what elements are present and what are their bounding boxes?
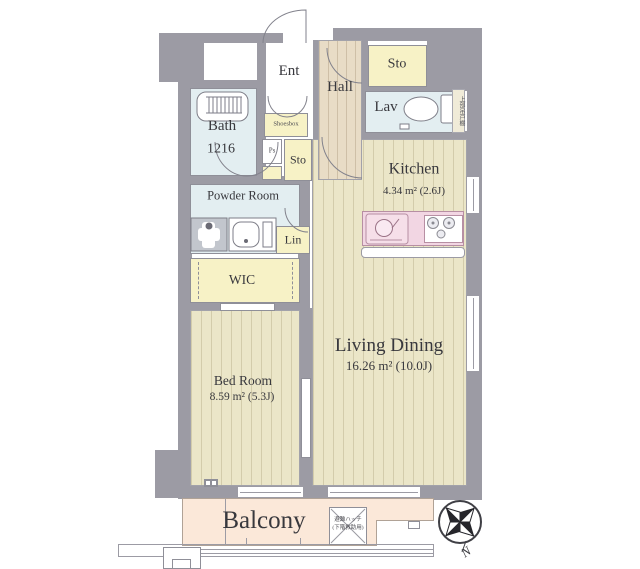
bed-room-label: Bed Room: [214, 374, 272, 388]
shoesbox-label: Shoesbox: [273, 122, 298, 129]
kitchen-area-label: 4.34 m² (2.6J): [383, 186, 445, 198]
railing-line-2: [197, 553, 434, 554]
lin-label: Lin: [285, 234, 302, 247]
balcony-stair-notch: [172, 559, 191, 569]
hatch-note-line2: (下階救助用): [332, 526, 363, 532]
hose-bib-marker: [204, 479, 218, 487]
pillar-top-left: [159, 33, 204, 82]
sto-entry-label: Sto: [290, 154, 306, 167]
living-side-window: [466, 295, 480, 372]
balcony-label: Balcony: [222, 508, 305, 534]
counter-front: [361, 247, 465, 258]
bedroom-sliding-door: [301, 378, 311, 458]
stove: [424, 215, 463, 243]
wall-top-a: [200, 33, 283, 43]
hatch-note-line1: 避難ハッチ: [334, 518, 362, 524]
bed-area-label: 8.59 m² (5.3J): [210, 391, 275, 403]
living-dining-label: Living Dining: [335, 336, 443, 356]
hall-floor: [318, 40, 362, 180]
kitchen-label: Kitchen: [389, 162, 440, 179]
north-label: N: [459, 544, 474, 560]
bath-label: Bath: [208, 119, 236, 135]
bedroom-window: [237, 486, 304, 498]
ent-label: Ent: [279, 64, 300, 80]
wic-hanger-left: [198, 262, 199, 299]
wall-bath-top: [178, 80, 266, 88]
wic-hanger-right: [292, 262, 293, 299]
wall-top-right-block: [427, 40, 467, 91]
floor-plan: 上部吊戸棚 Ent Hall Sto Lav Bath 1216 Shoesbo…: [0, 0, 640, 569]
upper-cabinet-note: 上部吊戸棚: [452, 89, 465, 133]
sto-upper-label: Sto: [388, 58, 407, 73]
living-area-label: 16.26 m² (10.0J): [346, 359, 432, 373]
hall-label: Hall: [327, 80, 353, 96]
wic-label: WIC: [229, 273, 255, 287]
balcony-drain: [408, 521, 420, 529]
lav-label: Lav: [374, 100, 397, 116]
railing-line-1: [197, 549, 434, 550]
wall-right: [467, 28, 482, 448]
powder-room-label: Powder Room: [207, 189, 279, 202]
pipe-space-lower: [262, 166, 282, 180]
bath-size-label: 1216: [207, 143, 235, 158]
compass-icon: [432, 494, 489, 552]
kitchen-side-window: [466, 176, 480, 214]
ps-label: Ps: [269, 147, 276, 154]
wic-sliding-door: [220, 303, 275, 311]
living-window: [327, 486, 421, 498]
